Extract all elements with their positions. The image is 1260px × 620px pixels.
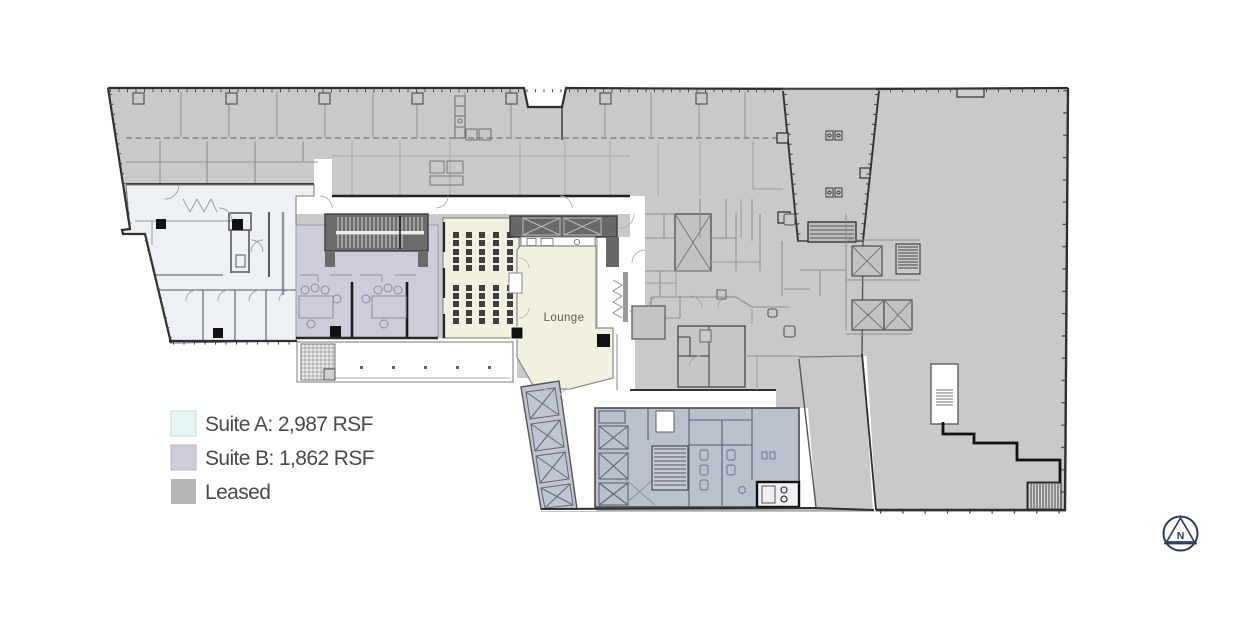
svg-text:Suite A: 2,987 RSF: Suite A: 2,987 RSF <box>205 413 373 436</box>
svg-text:Leased: Leased <box>205 481 270 504</box>
svg-text:Lounge: Lounge <box>544 312 585 324</box>
svg-text:N: N <box>1177 530 1185 542</box>
svg-text:Suite B: 1,862 RSF: Suite B: 1,862 RSF <box>205 447 374 470</box>
